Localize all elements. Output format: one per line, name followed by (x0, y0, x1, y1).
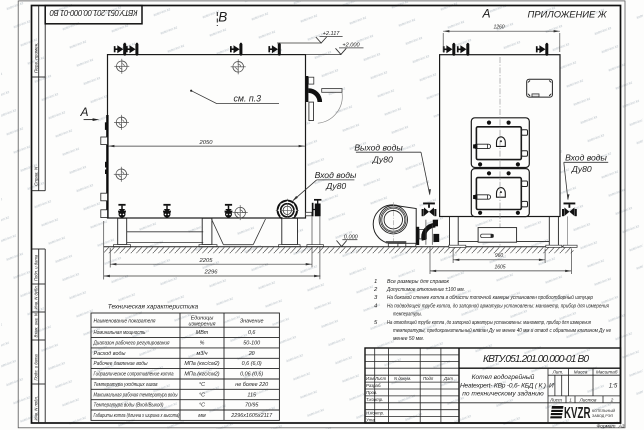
svg-text:см. п.3: см. п.3 (234, 93, 262, 103)
svg-text:Рабочее давление воды: Рабочее давление воды (94, 361, 148, 367)
svg-text:ЗАВОД РЭП: ЗАВОД РЭП (592, 414, 613, 418)
svg-text:Габариты котла (длинна х ширин: Габариты котла (длинна х ширина х высота… (94, 413, 180, 419)
svg-text:температуры, предохранительный: температуры, предохранительный клапан Ду… (393, 327, 612, 334)
svg-text:не более 220: не более 220 (235, 382, 268, 388)
svg-text:МВт: МВт (196, 330, 209, 336)
svg-text:+2.117: +2.117 (323, 31, 341, 37)
svg-text:0,06 (0,6): 0,06 (0,6) (240, 372, 263, 378)
svg-text:Подп. и дата: Подп. и дата (33, 254, 38, 281)
svg-text:Подп: Подп (423, 376, 434, 381)
svg-text:KVZR: KVZR (564, 405, 591, 422)
svg-text:Формат: Формат (596, 423, 615, 429)
svg-text:Пров.: Пров. (366, 390, 377, 395)
svg-text:На боковой стенке котла в обла: На боковой стенке котла в области топочн… (387, 294, 594, 301)
svg-text:мм: мм (198, 413, 206, 419)
svg-text:°С: °С (199, 403, 205, 409)
svg-text:Котел водогрейный: Котел водогрейный (472, 373, 535, 381)
svg-text:В: В (218, 9, 227, 24)
svg-text:+2.000: +2.000 (342, 42, 360, 48)
svg-text:Допустимое отклонение ±100 мм: Допустимое отклонение ±100 мм. (386, 287, 465, 293)
svg-text:960: 960 (495, 253, 504, 259)
svg-text:Ду80: Ду80 (571, 164, 592, 174)
svg-text:Единицы: Единицы (191, 315, 214, 321)
svg-text:Инв. N дубл.: Инв. N дубл. (33, 285, 38, 309)
svg-text:Вход воды: Вход воды (565, 152, 607, 162)
svg-text:N докум.: N докум. (394, 376, 411, 381)
svg-text:МПа (кгс/см2): МПа (кгс/см2) (184, 361, 219, 367)
svg-text:Температура уходящих газов: Температура уходящих газов (94, 382, 158, 388)
svg-text:Подп. и дата: Подп. и дата (33, 354, 38, 381)
svg-text:Максимальная рабочая температу: Максимальная рабочая температура воды (94, 392, 178, 398)
svg-text:Лист: Лист (549, 397, 562, 402)
svg-text:1260: 1260 (493, 25, 504, 31)
svg-text:Масштаб: Масштаб (596, 369, 618, 374)
svg-text:КВТУ.051.201.00.000-01 В0: КВТУ.051.201.00.000-01 В0 (49, 8, 138, 17)
svg-text:70/95: 70/95 (245, 403, 259, 409)
svg-text:Heatexpert- КВр -0,6- КБД ( К: Heatexpert- КВр -0,6- КБД ( К ) (460, 382, 546, 389)
svg-text:1: 1 (374, 279, 377, 285)
svg-text:КВТУ.051.201.00.000-01 В0: КВТУ.051.201.00.000-01 В0 (483, 354, 589, 365)
svg-text:1605: 1605 (494, 264, 505, 270)
svg-text:И: И (549, 382, 554, 389)
svg-text:2205: 2205 (199, 258, 214, 264)
svg-text:МПа (кгс/см2): МПа (кгс/см2) (184, 372, 219, 378)
svg-text:50-100: 50-100 (243, 341, 260, 347)
svg-text:измерения: измерения (189, 322, 216, 328)
svg-text:Дат: Дат (443, 376, 453, 381)
svg-text:Вход воды: Вход воды (315, 170, 357, 180)
svg-text:Листов: Листов (579, 397, 597, 402)
svg-text:ПРИЛОЖЕНИЕ Ж: ПРИЛОЖЕНИЕ Ж (528, 8, 608, 19)
svg-text:Изм Лист: Изм Лист (366, 376, 387, 381)
svg-text:115: 115 (247, 392, 257, 398)
svg-text:Масса: Масса (574, 369, 588, 374)
svg-text:м3/ч: м3/ч (197, 351, 208, 357)
svg-text:%: % (200, 341, 205, 347)
svg-text:Все размеры для справок: Все размеры для справок (387, 279, 449, 285)
svg-text:Выход воды: Выход воды (354, 142, 403, 152)
svg-text:2296х1605х2117: 2296х1605х2117 (230, 413, 273, 419)
svg-text:1: 1 (569, 397, 572, 402)
svg-text:А: А (80, 105, 89, 119)
svg-text:Наименование показателя: Наименование показателя (94, 318, 156, 324)
svg-text:20: 20 (248, 351, 255, 357)
svg-text:Н.контр.: Н.контр. (366, 411, 384, 416)
svg-text:Лит.: Лит. (552, 369, 564, 374)
svg-text:Ду80: Ду80 (325, 181, 346, 191)
svg-text:Перв. примен.: Перв. примен. (33, 42, 38, 73)
svg-text:Номинальная мощность: Номинальная мощность (94, 330, 146, 336)
svg-text:°С: °С (199, 392, 205, 398)
svg-text:2296: 2296 (204, 270, 219, 276)
svg-text:Утв.: Утв. (366, 417, 376, 422)
svg-text:Ду80: Ду80 (372, 154, 393, 164)
svg-text:Т.контр.: Т.контр. (366, 397, 383, 402)
svg-text:Инв. N подл.: Инв. N подл. (33, 396, 38, 420)
svg-text:2: 2 (373, 287, 378, 293)
svg-text:А: А (482, 6, 491, 20)
svg-text:1:5: 1:5 (609, 382, 618, 389)
svg-text:Расход воды: Расход воды (94, 351, 126, 357)
svg-text:Гидравлическое сопротивление к: Гидравлическое сопротивление котла (94, 372, 174, 378)
svg-text:Температура воды (Вход/Выход): Температура воды (Вход/Выход) (94, 403, 164, 409)
svg-text:А3: А3 (618, 423, 625, 429)
svg-text:Взам. инв. N: Взам. инв. N (33, 312, 38, 337)
svg-text:Техническая характеристика: Техническая характеристика (108, 304, 199, 311)
svg-text:0,6 (6,0): 0,6 (6,0) (242, 361, 262, 367)
svg-text:На подводящей трубе котла, д: На подводящей трубе котла, до запорной а… (387, 302, 610, 309)
svg-text:Справ. N: Справ. N (33, 166, 38, 186)
svg-text:по техническому заданию: по техническому заданию (462, 390, 544, 398)
svg-text:Значение: Значение (240, 318, 264, 324)
svg-text:температуры.: температуры. (393, 312, 422, 318)
svg-text:Диапазон рабочего регулировани: Диапазон рабочего регулирования (93, 341, 170, 347)
svg-text:менее 50 мм.: менее 50 мм. (393, 336, 424, 342)
svg-text:0,6: 0,6 (248, 330, 256, 336)
svg-text:°С: °С (199, 382, 205, 388)
svg-text:2: 2 (610, 397, 614, 402)
svg-text:2050: 2050 (199, 140, 214, 146)
svg-text:КОТЕЛЬНЫЙ: КОТЕЛЬНЫЙ (592, 409, 615, 413)
svg-text:На отводящей трубе котла ,до з: На отводящей трубе котла ,до запорной ар… (387, 319, 592, 326)
svg-text:Разраб.: Разраб. (366, 383, 382, 388)
